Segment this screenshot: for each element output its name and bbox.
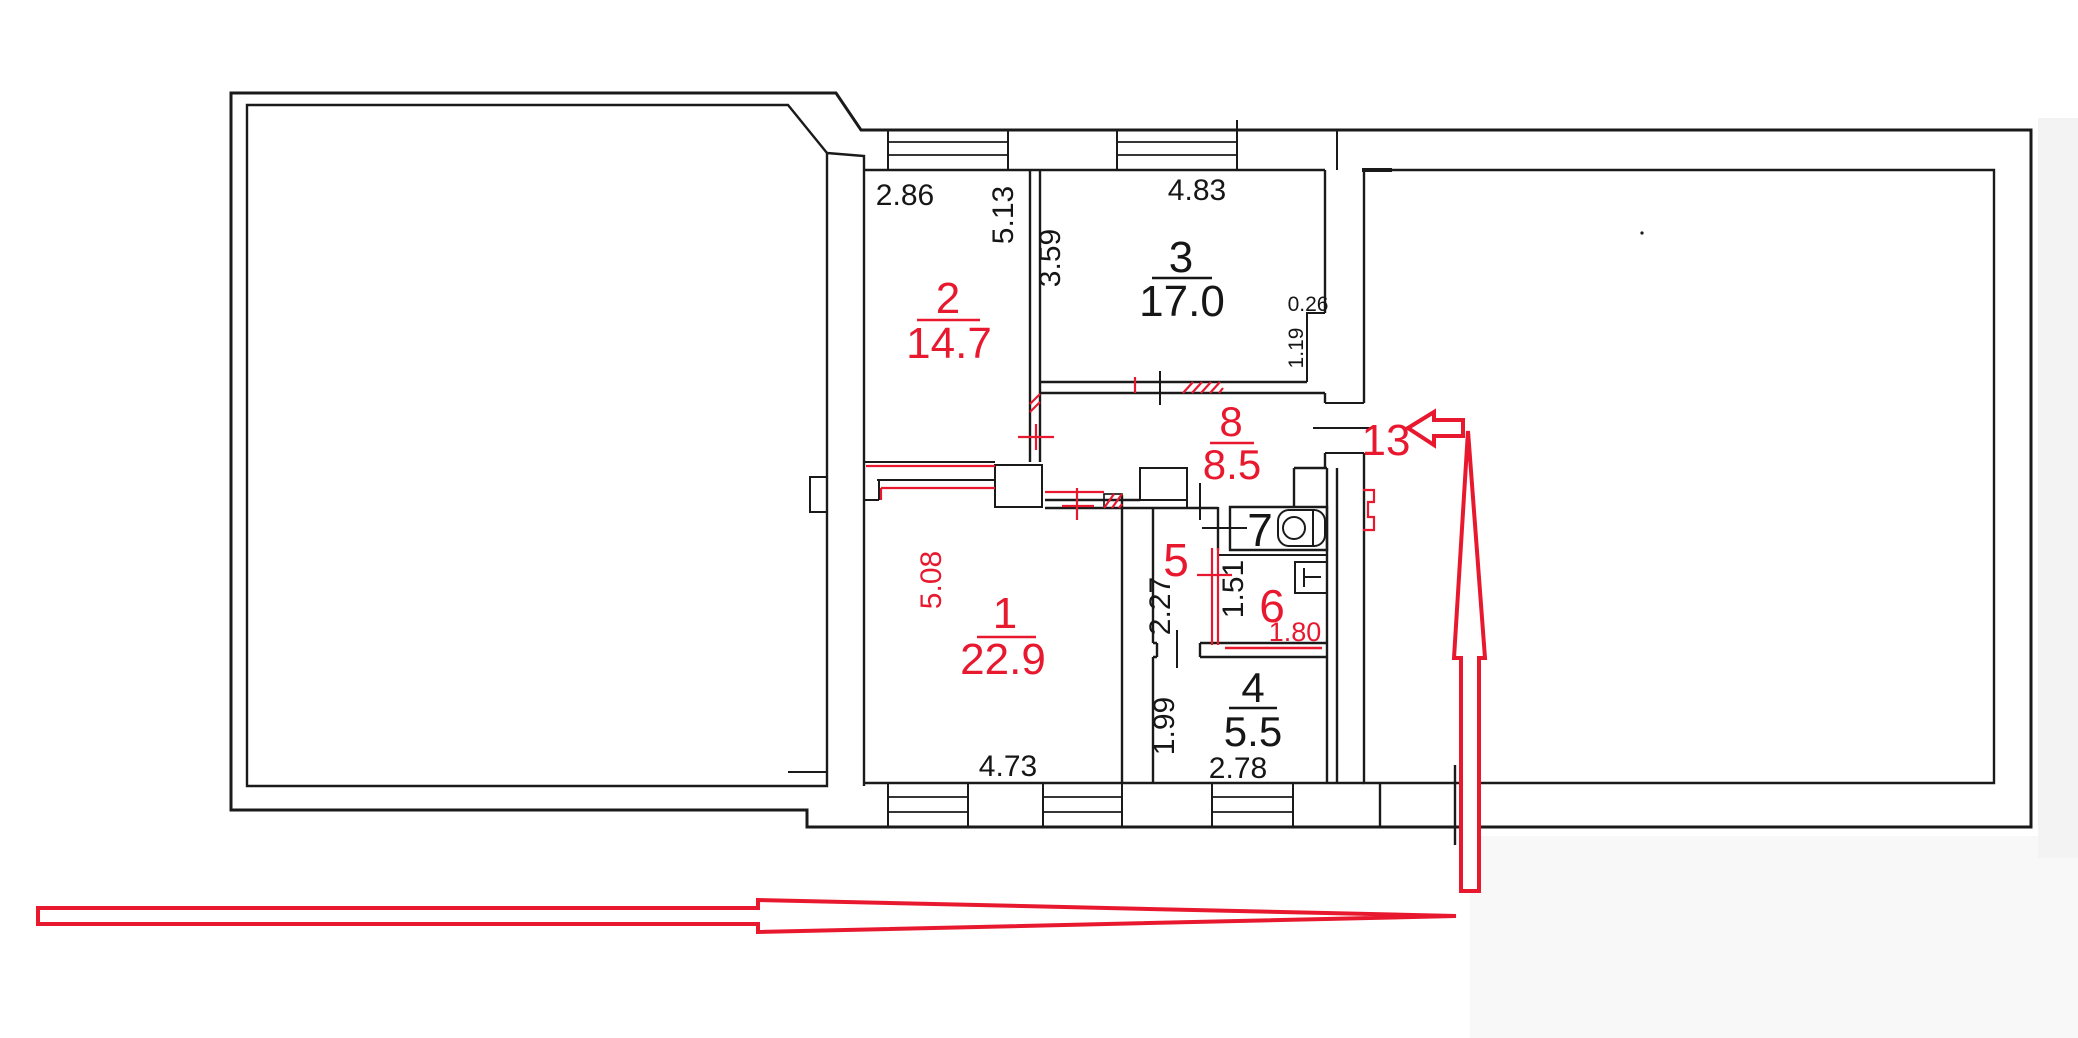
- room1-opening-red-marks: [1045, 488, 1104, 520]
- room-6-width-dim: 1.80: [1269, 617, 1322, 647]
- walls: [231, 93, 2031, 845]
- room-3-area: 17.0: [1139, 277, 1225, 326]
- central-wall-jog: [810, 477, 828, 512]
- room-1-number: 1: [993, 589, 1017, 638]
- horizontal-annotation-arrow-icon: [38, 900, 1456, 932]
- bottom-window-jambs: [888, 783, 1293, 827]
- room-3-width-dim: 4.83: [1168, 174, 1226, 207]
- niche-depth-dim: 1.19: [1285, 328, 1308, 369]
- room-4-width-dim: 2.78: [1209, 752, 1267, 785]
- room-7-number: 7: [1247, 504, 1273, 556]
- room-1-height-dim: 5.08: [915, 551, 948, 609]
- scan-shade-right: [2038, 118, 2078, 858]
- left-room-inner-wall: [247, 105, 827, 786]
- window-bottom-2: [1043, 797, 1122, 812]
- room2-wall-red-cross: [1018, 424, 1054, 450]
- room-3-height-dim: 3.59: [1034, 229, 1067, 287]
- room-2-height-dim: 5.13: [987, 186, 1020, 244]
- room1-top-red-lines: [866, 466, 995, 500]
- central-wall: [827, 153, 864, 786]
- duct-box: [995, 465, 1042, 507]
- room-4-number: 4: [1241, 664, 1264, 711]
- window-top-1: [888, 142, 1008, 155]
- room-4-area: 5.5: [1224, 708, 1282, 755]
- scan-shade-bottom: [1470, 836, 2078, 1038]
- room-4-height-dim: 1.99: [1148, 697, 1181, 755]
- room3-niche: [1307, 313, 1325, 382]
- towel-rail-icon: [1295, 562, 1327, 593]
- room1-top-wall: [864, 462, 995, 500]
- entrance-label: 13: [1362, 416, 1411, 465]
- room-5-height-dim: 2.27: [1144, 577, 1177, 635]
- room8-step-box: [1140, 468, 1187, 508]
- room8-bottom-right: [1294, 468, 1327, 507]
- top-window-jambs: [888, 120, 1337, 170]
- fixtures: [1278, 510, 1327, 593]
- room4-right-wall: [1327, 468, 1337, 783]
- window-bottom-3: [1212, 797, 1293, 812]
- floor-plan: 2 14.7 2.86 5.13 3 17.0 4.83 3.59 0.26 1…: [0, 0, 2078, 1038]
- room-2-width-dim: 2.86: [876, 179, 934, 212]
- floor-plan-page: 2 14.7 2.86 5.13 3 17.0 4.83 3.59 0.26 1…: [0, 0, 2078, 1038]
- annotation-arrows: [38, 412, 1485, 932]
- window-top-2: [1117, 142, 1237, 155]
- outer-wall: [231, 93, 2031, 827]
- vertical-annotation-arrow-icon: [1454, 431, 1485, 891]
- scan-shading: [1470, 118, 2078, 1038]
- room-8-number: 8: [1219, 398, 1242, 445]
- room2-right-wall: [1030, 170, 1040, 462]
- room-2-number: 2: [936, 274, 960, 323]
- room-8-area: 8.5: [1203, 441, 1261, 488]
- room3-bottom-wall: [1040, 382, 1325, 393]
- right-room-inner-wall: [1364, 170, 1994, 783]
- room-1-width-dim: 4.73: [979, 750, 1037, 783]
- hatch-room2-wall: [1030, 394, 1040, 412]
- room-2-area: 14.7: [906, 319, 992, 368]
- room-3-number: 3: [1169, 233, 1193, 282]
- hatch-room3-wall: [1183, 382, 1223, 393]
- room-6-height-dim: 1.51: [1217, 560, 1250, 618]
- entrance-left-arrow-icon: [1408, 412, 1463, 445]
- room-1-area: 22.9: [960, 635, 1046, 684]
- stray-dot: [1640, 231, 1643, 234]
- niche-width-dim: 0.26: [1288, 293, 1329, 316]
- toilet-icon: [1278, 510, 1325, 546]
- window-bottom-1: [888, 797, 968, 812]
